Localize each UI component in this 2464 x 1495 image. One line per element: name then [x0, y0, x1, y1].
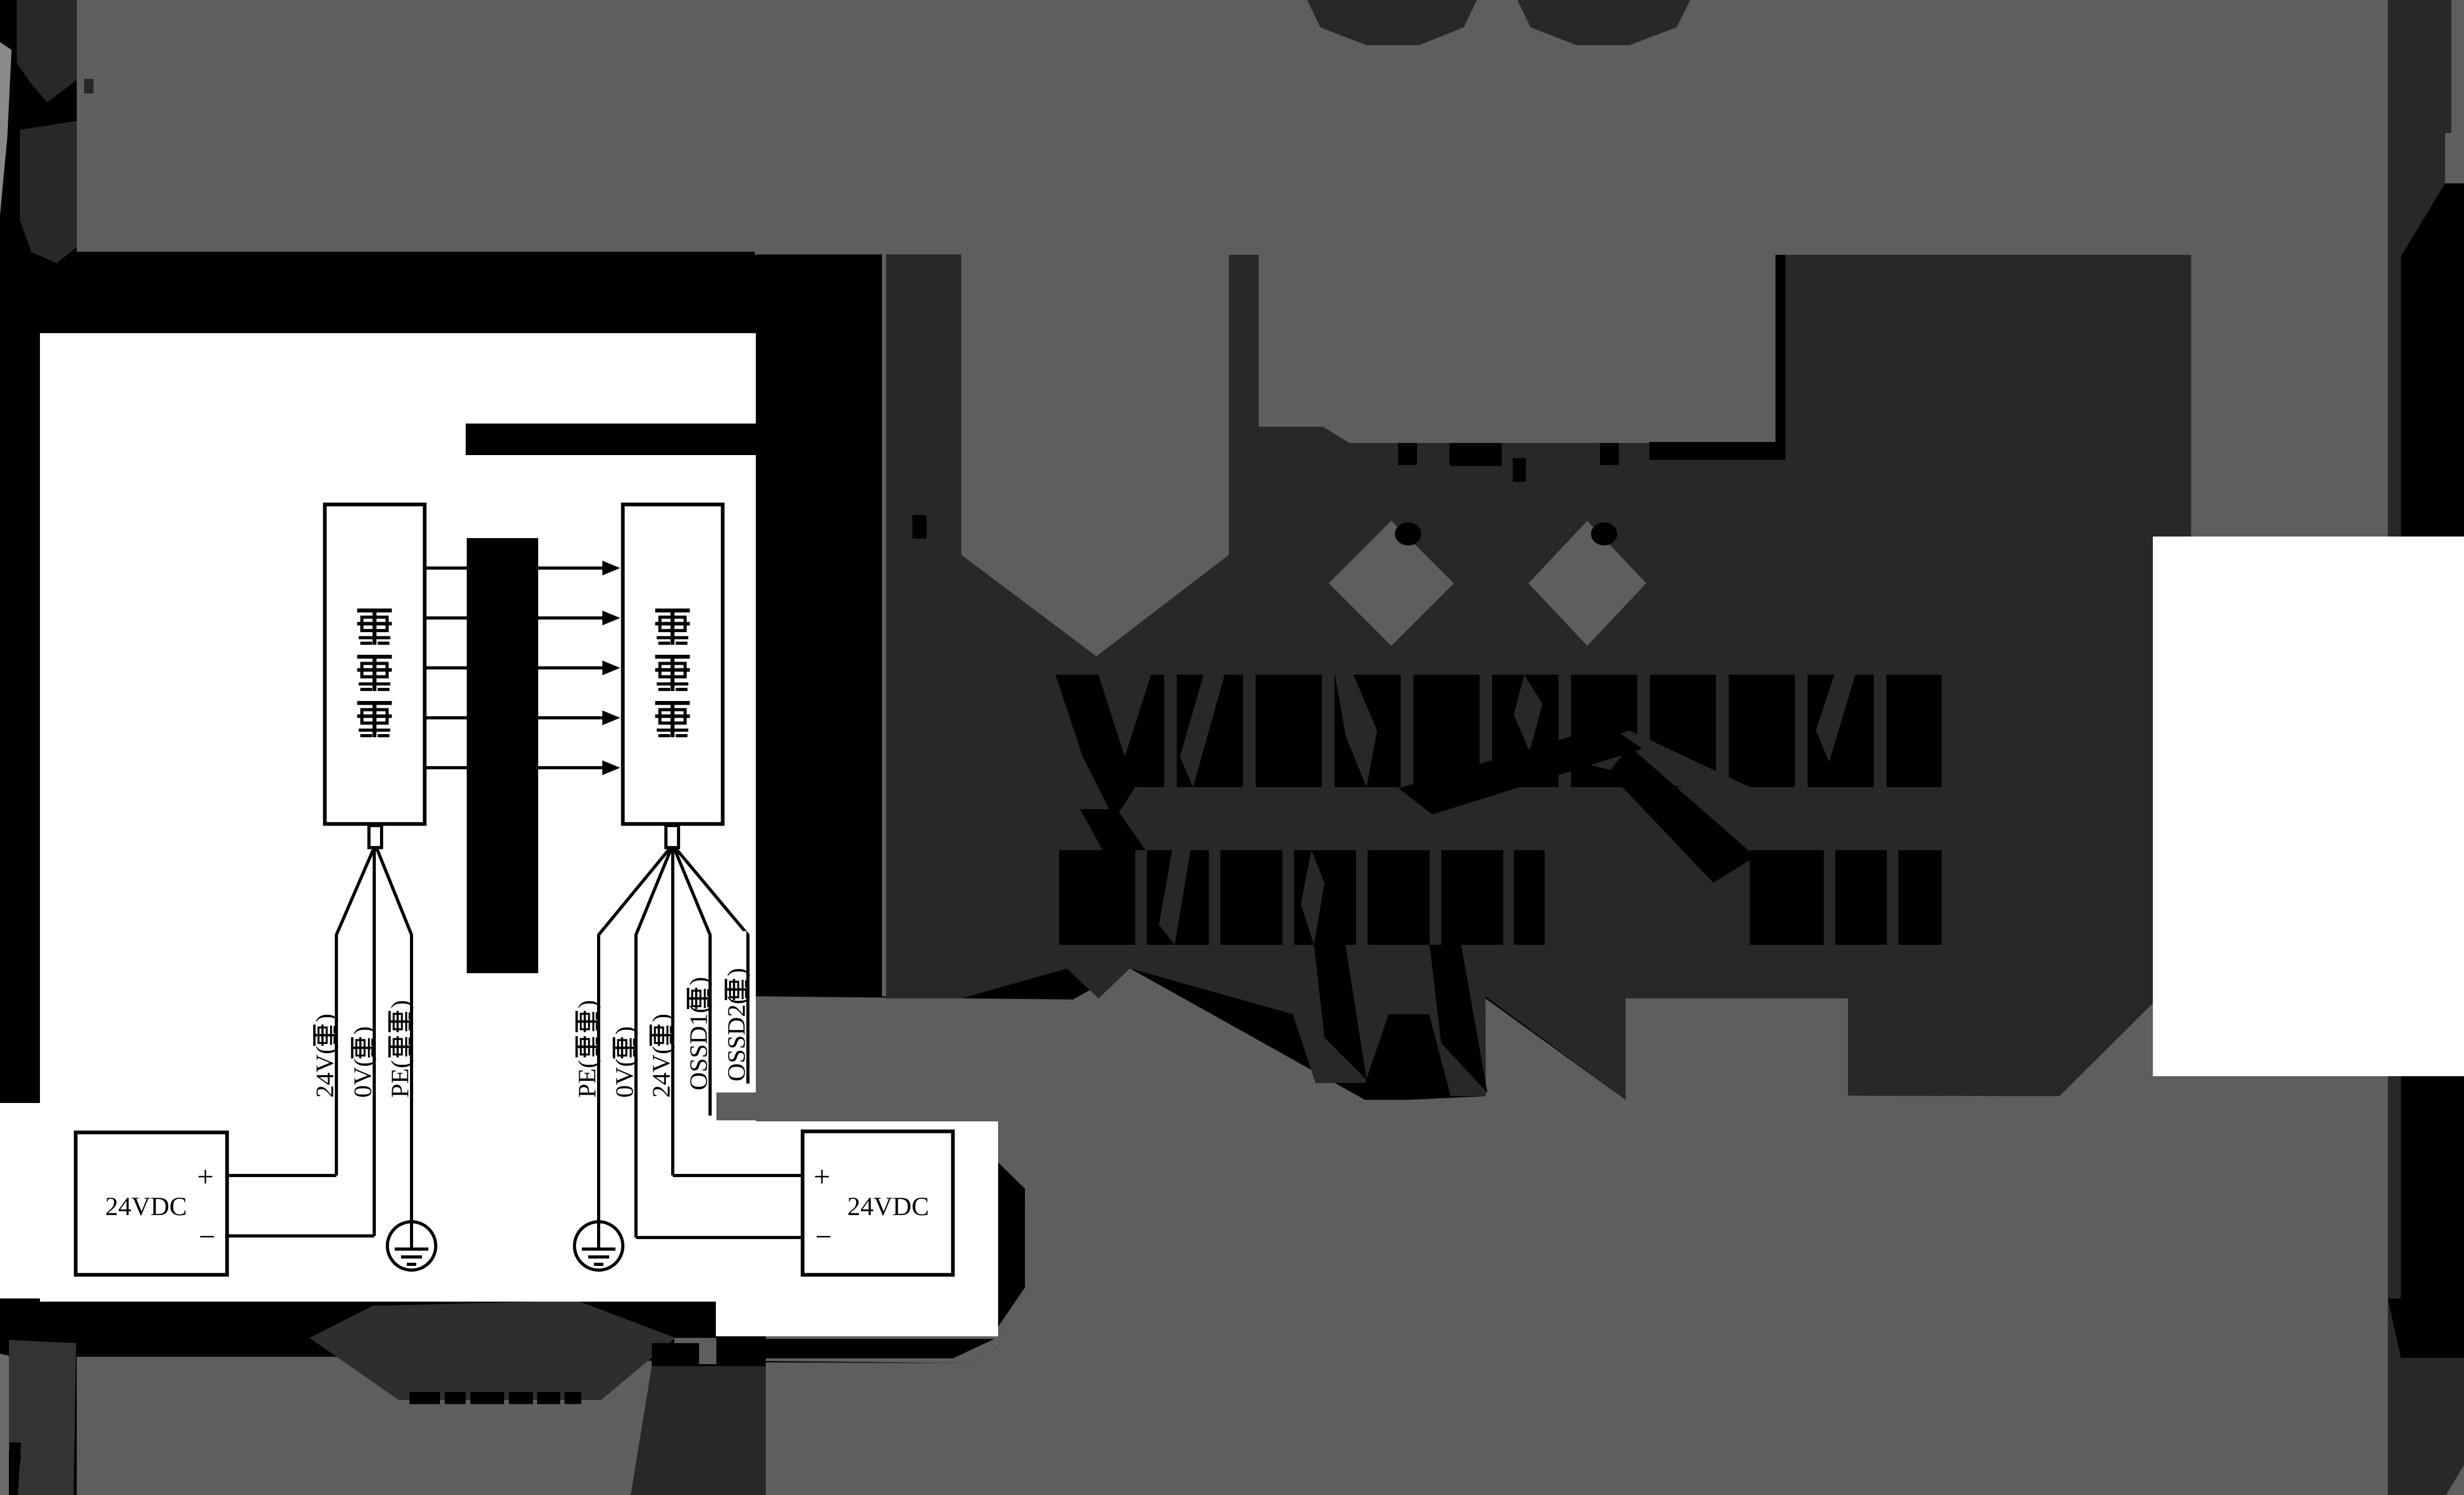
svg-text:): ): [723, 968, 751, 976]
svg-text:): ): [685, 977, 713, 985]
svg-text:−: −: [199, 1221, 215, 1253]
svg-text:OSSD2(: OSSD2(: [723, 996, 751, 1081]
svg-text:+: +: [197, 1161, 214, 1193]
svg-text:): ): [311, 1014, 339, 1022]
svg-text:0V(: 0V(: [349, 1058, 377, 1098]
svg-text:24V(: 24V(: [648, 1046, 675, 1098]
svg-text:24VDC: 24VDC: [105, 1191, 187, 1221]
svg-text:0V(: 0V(: [611, 1058, 639, 1098]
svg-text:): ): [349, 1026, 377, 1035]
svg-text:PE(: PE(: [386, 1060, 414, 1098]
svg-text:): ): [386, 1000, 414, 1008]
svg-text:): ): [573, 1000, 601, 1008]
svg-text:PE(: PE(: [573, 1060, 601, 1098]
svg-text:): ): [611, 1026, 639, 1035]
svg-text:): ): [648, 1014, 675, 1022]
svg-text:OSSD1(: OSSD1(: [685, 1005, 713, 1090]
svg-text:24V(: 24V(: [311, 1046, 339, 1098]
svg-text:+: +: [814, 1161, 830, 1193]
svg-text:24VDC: 24VDC: [847, 1191, 929, 1221]
svg-text:−: −: [815, 1221, 832, 1253]
